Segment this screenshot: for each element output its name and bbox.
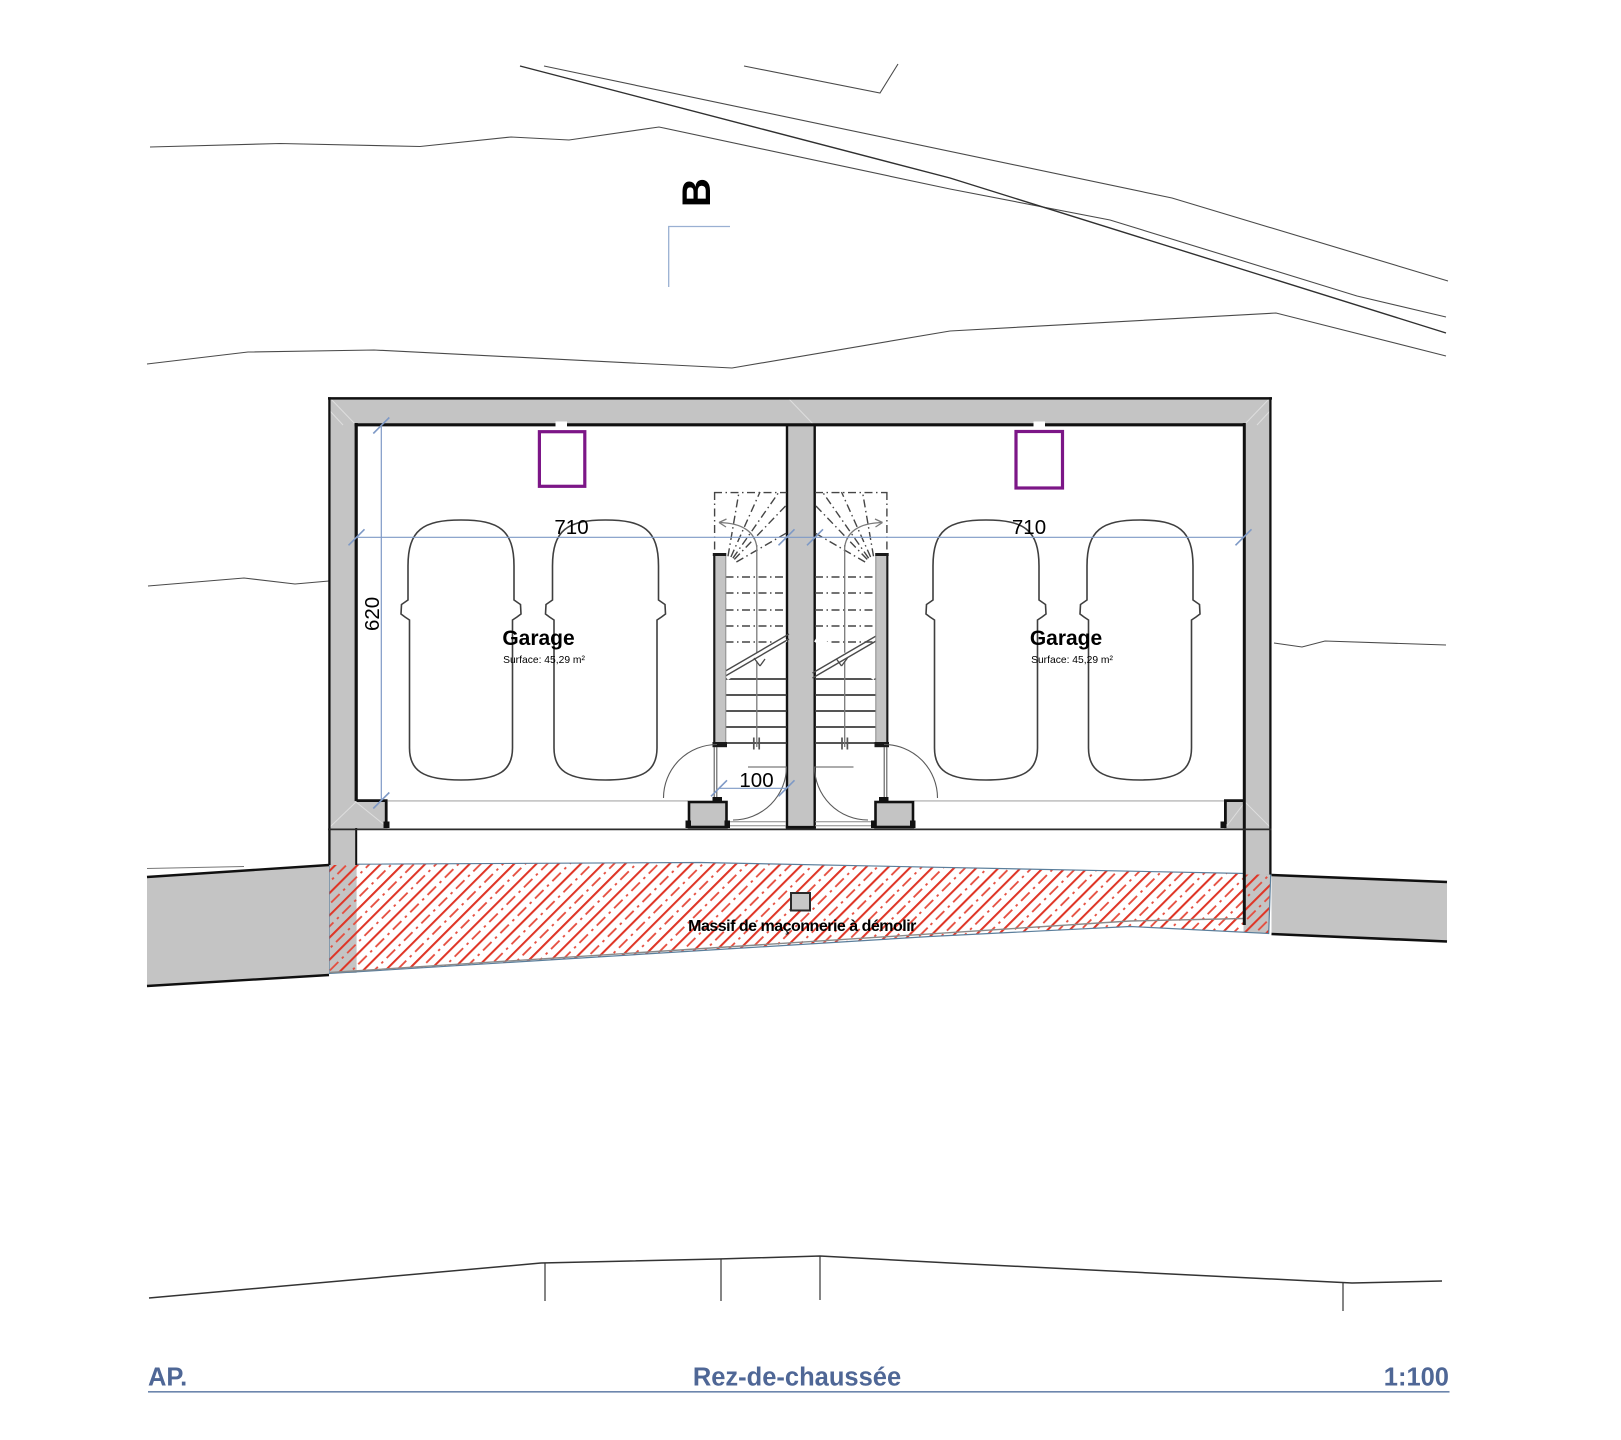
svg-text:710: 710 — [1012, 516, 1046, 539]
svg-text:Massif de maçonnerie à démolir: Massif de maçonnerie à démolir — [688, 918, 916, 935]
svg-text:Surface: 45,29 m²: Surface: 45,29 m² — [503, 655, 585, 666]
svg-text:Rez-de-chaussée: Rez-de-chaussée — [693, 1364, 901, 1392]
svg-text:Surface: 45,29 m²: Surface: 45,29 m² — [1031, 655, 1113, 666]
svg-text:620: 620 — [361, 597, 384, 631]
svg-text:AP.: AP. — [148, 1364, 187, 1392]
svg-text:100: 100 — [739, 769, 773, 792]
svg-text:Garage: Garage — [502, 627, 574, 650]
svg-text:1:100: 1:100 — [1384, 1364, 1449, 1392]
svg-text:Garage: Garage — [1030, 627, 1102, 650]
svg-text:B: B — [675, 178, 719, 207]
svg-text:710: 710 — [554, 516, 588, 539]
